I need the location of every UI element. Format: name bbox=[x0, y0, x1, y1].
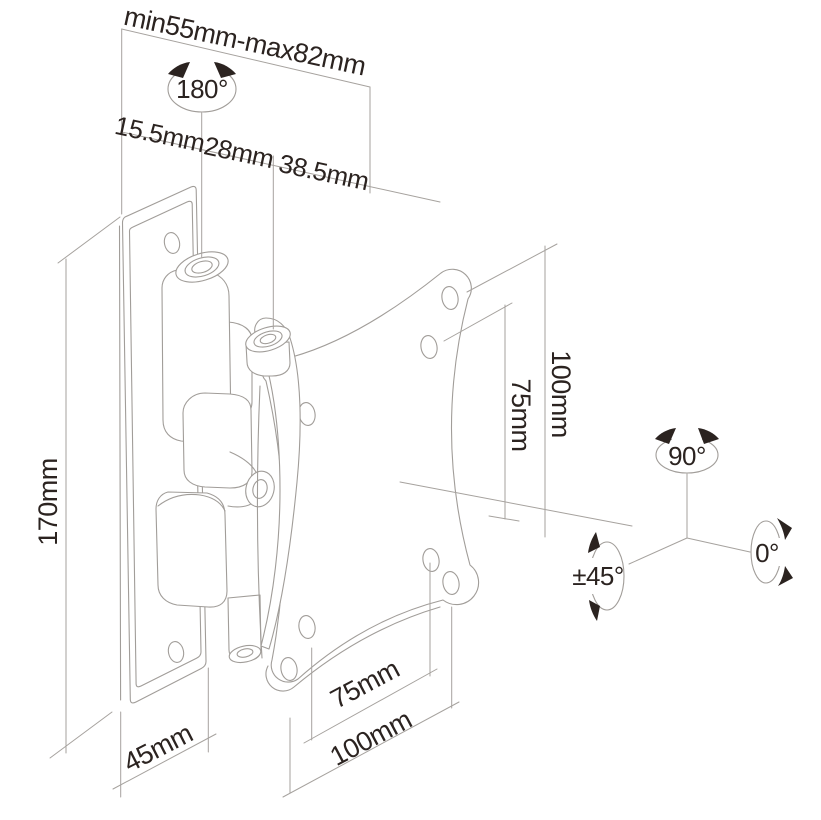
dim-r75-ext-bottom bbox=[489, 516, 519, 521]
dim-height-tick-top bbox=[58, 217, 120, 263]
diagram-canvas: min55mm-max82mm 180° 15.5mm 28mm 38.5mm … bbox=[0, 0, 821, 820]
axis-left bbox=[629, 538, 687, 564]
rotation-180-gap bbox=[186, 58, 218, 72]
label-swivel-45: ±45° bbox=[572, 561, 624, 591]
label-tilt-0: 0° bbox=[755, 538, 779, 568]
rotation-axes bbox=[629, 474, 750, 564]
label-seg-15-5: 15.5mm bbox=[112, 110, 207, 158]
label-depth-45: 45mm bbox=[119, 718, 198, 778]
hinge-arm-screw bbox=[243, 321, 294, 376]
wall-plate-left-edge bbox=[120, 226, 121, 700]
dim-r100-ext-top bbox=[467, 244, 557, 292]
label-seg-38-5: 38.5mm bbox=[276, 148, 371, 196]
rotation-0-arrow-bottom bbox=[778, 566, 793, 586]
label-swivel-180: 180° bbox=[176, 74, 228, 104]
label-seg-28: 28mm bbox=[201, 130, 276, 174]
hinge-bottom-knob bbox=[228, 595, 263, 665]
label-vesa-h-75: 75mm bbox=[325, 654, 404, 715]
hinge-lower-boss bbox=[156, 492, 227, 607]
dim-height-tick-bottom bbox=[50, 712, 112, 758]
label-top-range: min55mm-max82mm bbox=[121, 1, 368, 82]
label-vesa-v-100: 100mm bbox=[546, 350, 576, 438]
hinge-mid-barrel bbox=[183, 393, 252, 488]
label-height-170: 170mm bbox=[33, 458, 63, 546]
label-vesa-v-75: 75mm bbox=[506, 378, 536, 451]
rotation-45-arrow-top bbox=[588, 532, 600, 553]
axis-right bbox=[687, 538, 750, 552]
rotation-45-arrow-bottom bbox=[589, 600, 600, 621]
mount-dimension-diagram: min55mm-max82mm 180° 15.5mm 28mm 38.5mm … bbox=[0, 0, 821, 820]
label-tilt-90: 90° bbox=[668, 441, 706, 471]
